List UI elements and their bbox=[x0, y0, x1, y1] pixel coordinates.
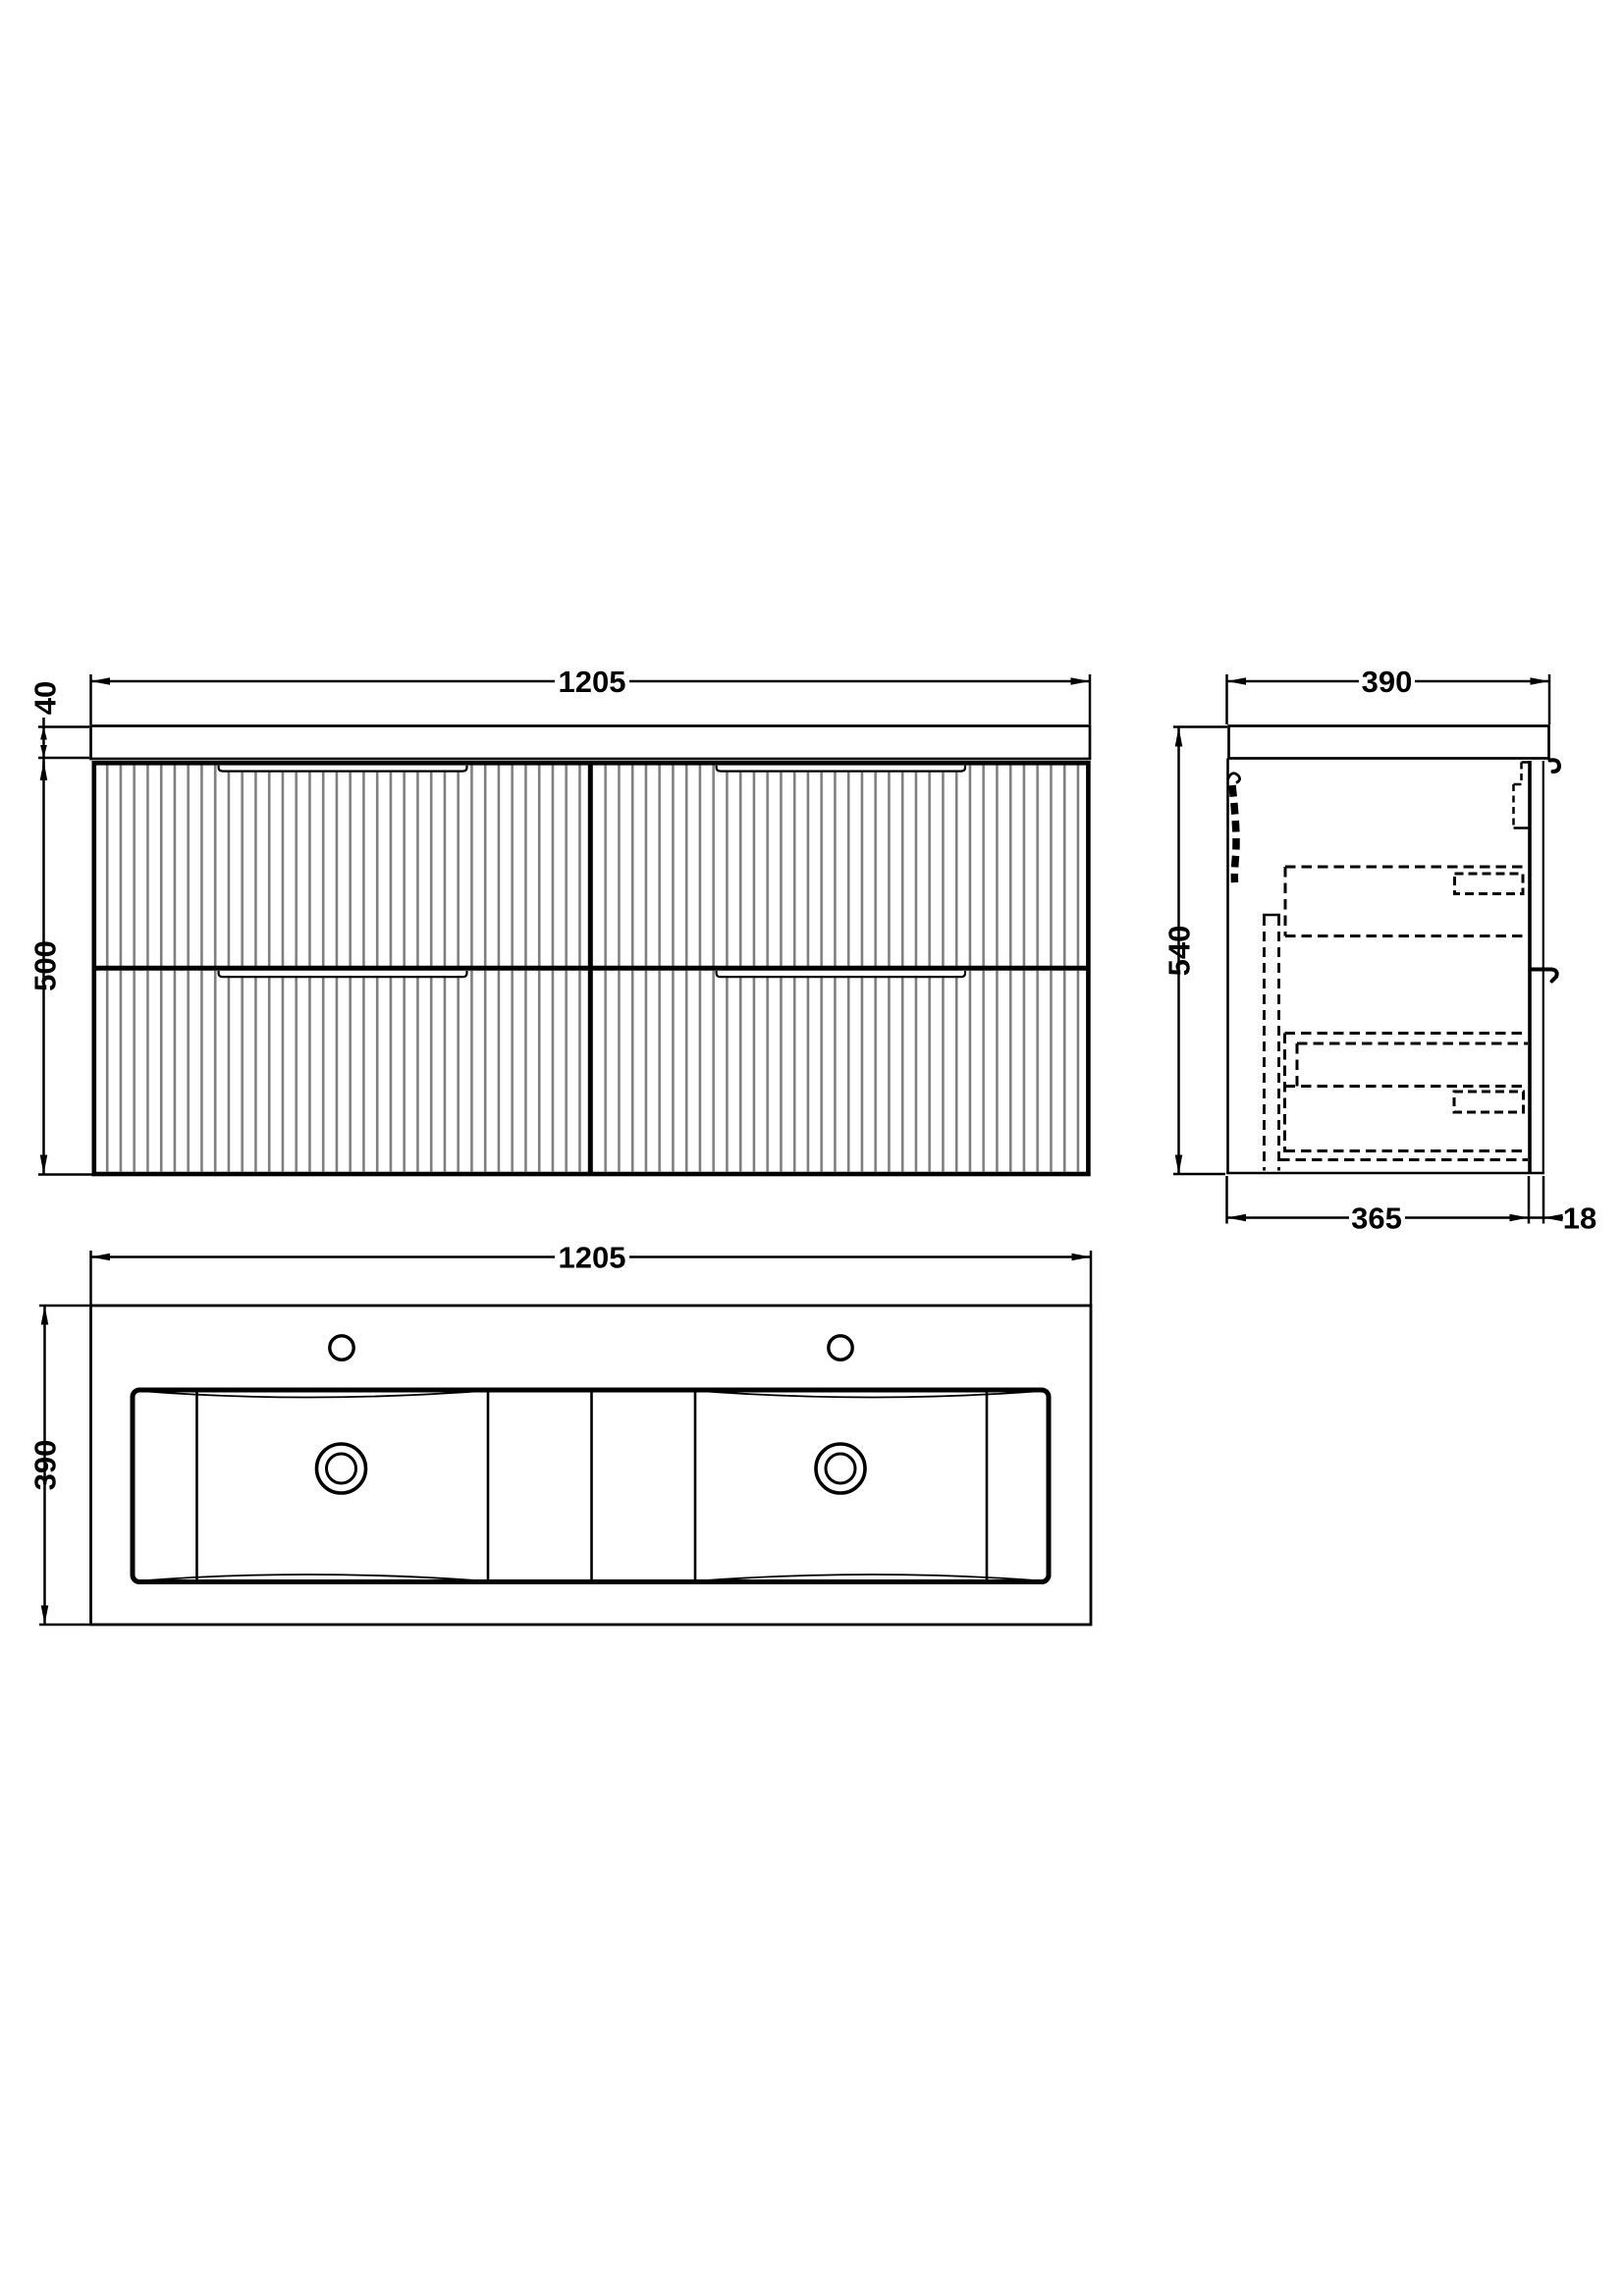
svg-text:540: 540 bbox=[1163, 926, 1197, 977]
svg-text:390: 390 bbox=[1362, 665, 1413, 699]
svg-text:500: 500 bbox=[28, 940, 63, 991]
svg-text:40: 40 bbox=[28, 681, 63, 715]
svg-text:18: 18 bbox=[1563, 1201, 1596, 1236]
svg-text:365: 365 bbox=[1351, 1201, 1402, 1236]
svg-text:1205: 1205 bbox=[559, 665, 626, 699]
svg-text:390: 390 bbox=[28, 1440, 63, 1491]
svg-text:1205: 1205 bbox=[559, 1241, 626, 1275]
